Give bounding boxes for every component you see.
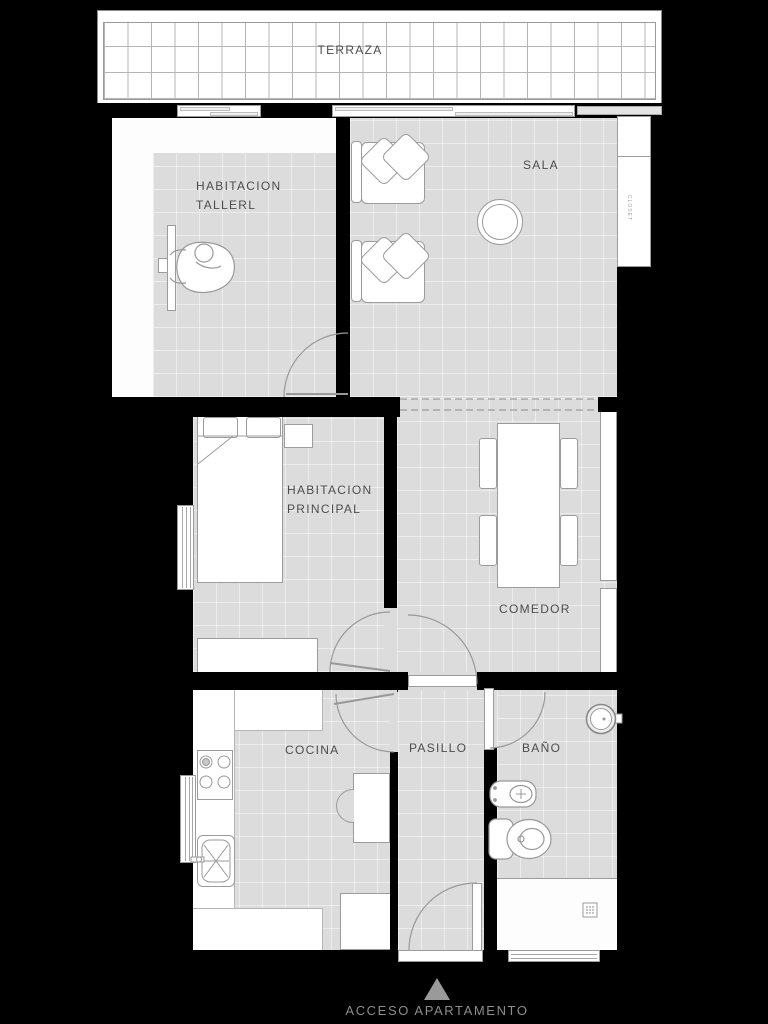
wall-upper-left	[97, 103, 112, 397]
sala-label: SALA	[523, 156, 559, 175]
principal-door-opening	[384, 608, 397, 672]
wall-middle	[97, 397, 400, 417]
entry-threshold	[398, 950, 483, 962]
pillow	[203, 417, 238, 438]
wall-pasillo-bano	[484, 748, 497, 963]
cocina-door-opening	[390, 692, 398, 752]
bano-window	[508, 950, 600, 962]
wall-pasillo-left	[390, 752, 398, 963]
terrace-tile-grid	[103, 22, 656, 100]
terrace-wall-segment	[577, 106, 662, 115]
dining-chair	[479, 515, 497, 566]
bed	[197, 415, 283, 583]
round-table-top	[482, 204, 518, 240]
dining-chair	[479, 438, 497, 489]
closet-unit	[617, 116, 651, 267]
cocina-label: COCINA	[285, 741, 339, 760]
pasillo-label: PASILLO	[409, 739, 467, 758]
pillow	[246, 417, 281, 438]
kitchen-sink	[197, 835, 235, 887]
terraza-label: TERRAZA	[290, 41, 410, 60]
closet-label: CLOSET	[626, 195, 632, 221]
principal-window	[177, 505, 194, 590]
dining-chair	[560, 438, 578, 489]
kitchen-table	[353, 773, 390, 843]
comedor-label: COMEDOR	[499, 600, 571, 619]
wall-cross-left	[180, 672, 408, 690]
wall-cross-right	[477, 672, 617, 690]
bano-door-leaf	[484, 688, 494, 750]
fridge	[340, 893, 397, 950]
wall-lower-right	[617, 400, 630, 967]
terrace-sliding-door	[177, 105, 261, 117]
dining-chair	[560, 515, 578, 566]
taller-label: HABITACION TALLERL	[196, 177, 281, 214]
entry-door-leaf	[472, 883, 482, 951]
floor-plan: CLOSET	[0, 0, 768, 1024]
comedor-threshold	[408, 675, 477, 687]
shower-area	[497, 878, 617, 950]
dining-table	[497, 423, 560, 588]
entrance-arrow-icon	[424, 978, 450, 1000]
wall-principal-comedor	[384, 412, 397, 608]
principal-label: HABITACION PRINCIPAL	[287, 481, 372, 518]
comedor-cabinet	[600, 411, 617, 581]
bano-label: BAÑO	[522, 739, 561, 758]
wall-taller-sala	[336, 103, 350, 333]
terrace-sliding-door	[332, 105, 575, 117]
wall-middle-stub	[598, 397, 617, 412]
cocina-window	[180, 775, 196, 863]
drafting-table-support	[158, 258, 168, 273]
comedor-cabinet	[600, 588, 617, 676]
access-label: ACCESO APARTAMENTO	[337, 1003, 537, 1018]
nightstand	[284, 424, 313, 448]
kitchen-counter-bottom	[193, 908, 323, 950]
stove	[197, 750, 233, 800]
room-bano-floor	[497, 690, 617, 880]
drafting-table	[167, 225, 176, 311]
